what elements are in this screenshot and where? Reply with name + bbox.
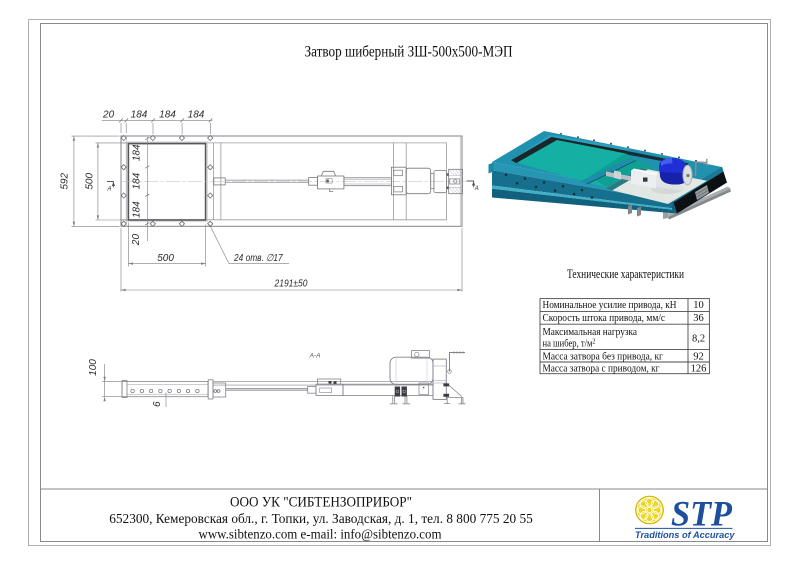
svg-text:36: 36 bbox=[693, 313, 704, 324]
svg-text:100: 100 bbox=[88, 359, 99, 376]
svg-text:592: 592 bbox=[60, 173, 71, 190]
svg-text:Traditions of Accuracy: Traditions of Accuracy bbox=[635, 530, 735, 541]
svg-text:А-А: А-А bbox=[309, 353, 321, 360]
svg-text:126: 126 bbox=[691, 363, 707, 374]
svg-text:652300, Кемеровская обл., г. Т: 652300, Кемеровская обл., г. Топки, ул. … bbox=[109, 512, 533, 527]
svg-text:184: 184 bbox=[188, 109, 205, 120]
svg-text:184: 184 bbox=[131, 109, 148, 120]
svg-text:184: 184 bbox=[132, 201, 143, 218]
svg-text:Затвор шиберный ЗШ-500х500-МЭП: Затвор шиберный ЗШ-500х500-МЭП bbox=[305, 44, 513, 61]
svg-text:www.sibtenzo.com e-mail: info@: www.sibtenzo.com e-mail: info@sibtenzo.c… bbox=[199, 527, 442, 542]
svg-text:А: А bbox=[474, 186, 479, 192]
svg-text:ООО УК "СИБТЕНЗОПРИБОР": ООО УК "СИБТЕНЗОПРИБОР" bbox=[230, 494, 412, 510]
svg-text:8,2: 8,2 bbox=[692, 334, 705, 345]
svg-text:на шибер, т/м2: на шибер, т/м2 bbox=[543, 337, 596, 350]
svg-text:Масса затвора без привода, кг: Масса затвора без привода, кг bbox=[543, 351, 664, 362]
svg-text:184: 184 bbox=[159, 109, 176, 120]
svg-text:184: 184 bbox=[132, 144, 143, 161]
svg-text:Скорость штока привода, мм/с: Скорость штока привода, мм/с bbox=[543, 313, 666, 324]
svg-text:Максимальная нагрузка: Максимальная нагрузка bbox=[543, 327, 638, 338]
svg-text:Номинальное усилие привода, кН: Номинальное усилие привода, кН bbox=[543, 300, 677, 311]
svg-text:500: 500 bbox=[85, 173, 96, 190]
svg-text:А: А bbox=[107, 187, 112, 193]
svg-text:10: 10 bbox=[693, 300, 704, 311]
svg-text:STP: STP bbox=[671, 493, 733, 533]
svg-text:20: 20 bbox=[131, 234, 142, 247]
svg-text:2191±50: 2191±50 bbox=[274, 278, 308, 289]
svg-text:500: 500 bbox=[157, 253, 174, 264]
svg-text:24 отв. ∅17: 24 отв. ∅17 bbox=[233, 253, 283, 264]
svg-text:20: 20 bbox=[102, 109, 115, 120]
svg-text:Технические характеристики: Технические характеристики bbox=[567, 267, 684, 281]
svg-text:92: 92 bbox=[693, 351, 704, 362]
svg-text:Масса затвора с приводом, кг: Масса затвора с приводом, кг bbox=[543, 363, 661, 374]
svg-text:6: 6 bbox=[152, 401, 163, 407]
svg-text:184: 184 bbox=[132, 172, 143, 189]
